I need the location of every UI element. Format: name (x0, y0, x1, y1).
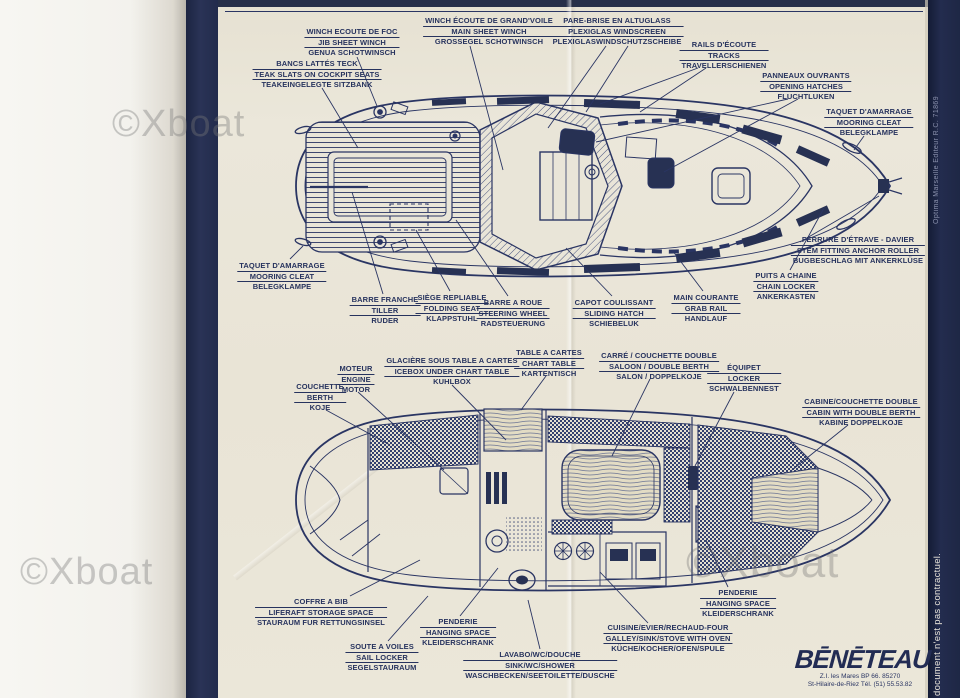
disclaimer-vertical: document n'est pas contractuel. (932, 536, 943, 696)
vberth-insert (752, 468, 818, 532)
label-carre: CARRÉ / COUCHETTE DOUBLESALOON / DOUBLE … (599, 351, 719, 382)
brand-block: BĒNĒTEAU Z.I. les Mares BP 66. 85270 St-… (795, 646, 925, 689)
label-puits-chaine: PUITS A CHAINECHAIN LOCKERANKERKASTEN (753, 271, 818, 302)
label-penderie-milieu: PENDERIEHANGING SPACEKLEIDERSCHRANK (420, 617, 496, 648)
label-barre-a-roue: BARRE A ROUESTEERING WHEELRADSTEUERUNG (477, 298, 550, 329)
label-rails-ecoute: RAILS D'ÉCOUTETRACKSTRAVELLERSCHIENEN (680, 40, 769, 71)
label-barre-franche: BARRE FRANCHETILLERRUDER (350, 295, 421, 326)
label-coffre-a-bib: COFFRE A BIBLIFERAFT STORAGE SPACESTAURA… (255, 597, 387, 628)
label-couchette: COUCHETTEBERTHKOJE (294, 382, 346, 413)
opening-hatch-1 (559, 128, 595, 155)
companionway-steps (486, 472, 507, 504)
xboat-watermark: ©Xboat (112, 103, 245, 146)
label-equipet: ÉQUIPETLOCKERSCHWALBENNEST (707, 363, 781, 394)
label-cuisine: CUISINE/EVIER/RECHAUD-FOURGALLEY/SINK/ST… (603, 623, 732, 654)
label-cabine-double: CABINE/COUCHETTE DOUBLECABIN WITH DOUBLE… (802, 397, 920, 428)
opening-hatch-2 (648, 158, 674, 188)
stem-fitting (878, 179, 889, 193)
label-pare-brise: PARE-BRISE EN ALTUGLASSPLEXIGLAS WINDSCR… (551, 16, 684, 47)
label-lavabo-wc: LAVABO/WC/DOUCHESINK/WC/SHOWERWASCHBECKE… (463, 650, 617, 681)
label-glaciere: GLACIÈRE SOUS TABLE A CARTESICEBOX UNDER… (384, 356, 519, 387)
sink (486, 530, 508, 552)
label-ferrure-etrave: FERRURE D'ÉTRAVE - DAVIERSTEM FITTING AN… (791, 235, 925, 266)
label-winch-foc: WINCH ECOUTE DE FOCJIB SHEET WINCHGENUA … (304, 27, 399, 58)
label-taquet-babord: TAQUET D'AMARRAGEMOORING CLEATBELEGKLAMP… (237, 261, 326, 292)
label-soute-a-voiles: SOUTE A VOILESSAIL LOCKERSEGELSTAURAUM (345, 642, 418, 673)
brochure-scan-page: WINCH ECOUTE DE FOCJIB SHEET WINCHGENUA … (0, 0, 960, 698)
label-penderie-avant: PENDERIEHANGING SPACEKLEIDERSCHRANK (700, 588, 776, 619)
address-line-1: Z.I. les Mares BP 66. 85270 (795, 673, 925, 681)
label-bancs-teck: BANCS LATTÉS TECKTEAK SLATS ON COCKPIT S… (253, 59, 382, 90)
xboat-watermark: ©Xboat (686, 538, 839, 588)
label-table-a-cartes: TABLE A CARTESCHART TABLEKARTENTISCH (514, 348, 584, 379)
chart-table (484, 409, 542, 451)
label-panneaux: PANNEAUX OUVRANTSOPENING HATCHESFLUCHTLU… (760, 71, 851, 102)
label-capot-coulissant: CAPOT COULISSANTSLIDING HATCHSCHIEBELUK (573, 298, 656, 329)
brand-address: Z.I. les Mares BP 66. 85270 St-Hilaire-d… (795, 673, 925, 689)
saloon-table (562, 450, 660, 520)
address-line-2: St-Hilaire-de-Riez Tél. (51) 55.53.82 (795, 681, 925, 689)
xboat-watermark: ©Xboat (20, 551, 153, 594)
label-main-courante: MAIN COURANTEGRAB RAILHANDLAUF (671, 293, 740, 324)
saloon-settee-right (664, 448, 690, 522)
beneteau-logo: BĒNĒTEAU (794, 646, 926, 672)
publisher-credit-vertical: Optima Marseille Editeur R.C. 71869 (933, 14, 940, 224)
label-taquet-tribord: TAQUET D'AMARRAGEMOORING CLEATBELEGKLAMP… (824, 107, 913, 138)
label-winch-gv: WINCH ÉCOUTE DE GRAND'VOILEMAIN SHEET WI… (423, 16, 555, 47)
saloon-settee-top (548, 416, 690, 448)
equipet-locker (688, 466, 698, 490)
